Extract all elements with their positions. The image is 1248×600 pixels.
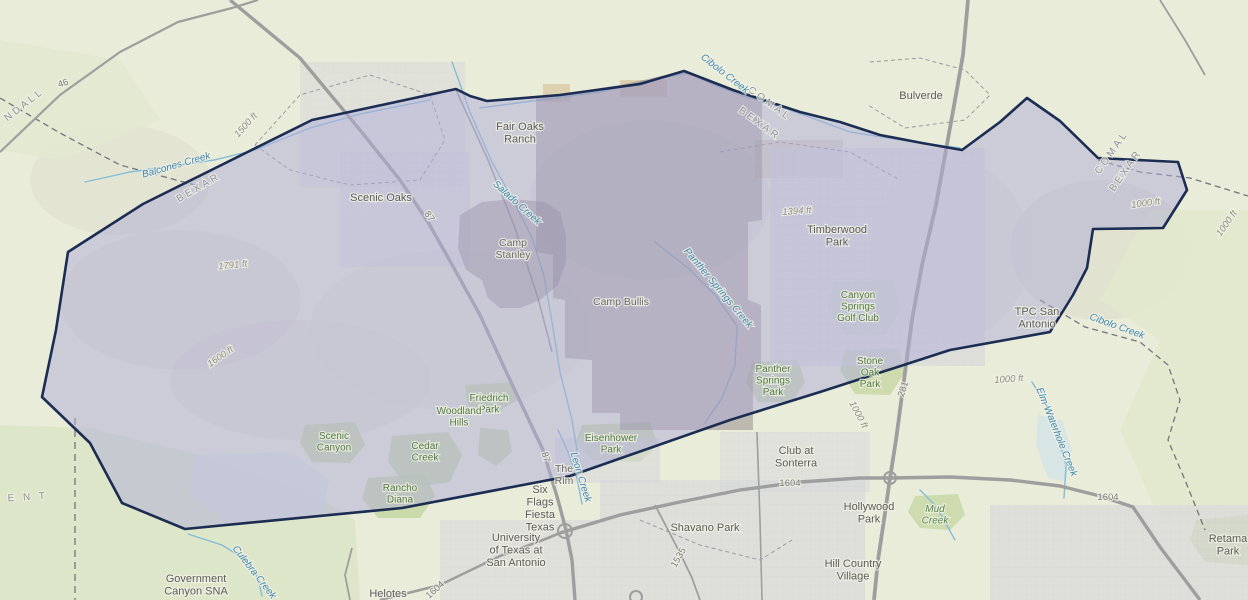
- label-the-rim: TheRim: [555, 463, 574, 487]
- label-road-1604-mid: 1604: [779, 478, 800, 489]
- label-club-at-sonterra: Club atSonterra: [775, 445, 818, 470]
- topo-map-canvas[interactable]: Fair OaksRanchScenic OaksBulverdeCampSta…: [0, 0, 1248, 600]
- label-road-1604-east: 1604: [1097, 492, 1118, 503]
- label-bulverde: Bulverde: [899, 90, 942, 102]
- label-scenic-canyon: ScenicCanyon: [317, 431, 351, 454]
- label-shavano-park: Shavano Park: [670, 522, 740, 534]
- label-tpc-san-antonio: TPC SanAntonio: [1015, 306, 1060, 331]
- urban-shavano-grid: [600, 480, 865, 600]
- map-svg[interactable]: Fair OaksRanchScenic OaksBulverdeCampSta…: [0, 0, 1248, 600]
- label-camp-bullis: Camp Bullis: [593, 296, 649, 308]
- label-canyon-springs: CanyonSpringsGolf Club: [837, 290, 879, 324]
- label-rancho-diana: RanchoDiana: [383, 483, 418, 506]
- urban-far-bottom-right-grid: [990, 505, 1248, 600]
- label-government-canyon: GovernmentCanyon SNA: [164, 573, 228, 598]
- label-utsa: Universityof Texas atSan Antonio: [486, 532, 545, 569]
- label-elev-1394: 1394 ft: [782, 205, 812, 218]
- label-helotes: Helotes: [369, 588, 407, 600]
- label-elev-1000-b: 1000 ft: [994, 373, 1024, 386]
- label-camp-stanley: CampStanley: [495, 237, 531, 261]
- label-scenic-oaks: Scenic Oaks: [350, 192, 412, 204]
- label-cedar-creek: CedarCreek: [411, 441, 439, 464]
